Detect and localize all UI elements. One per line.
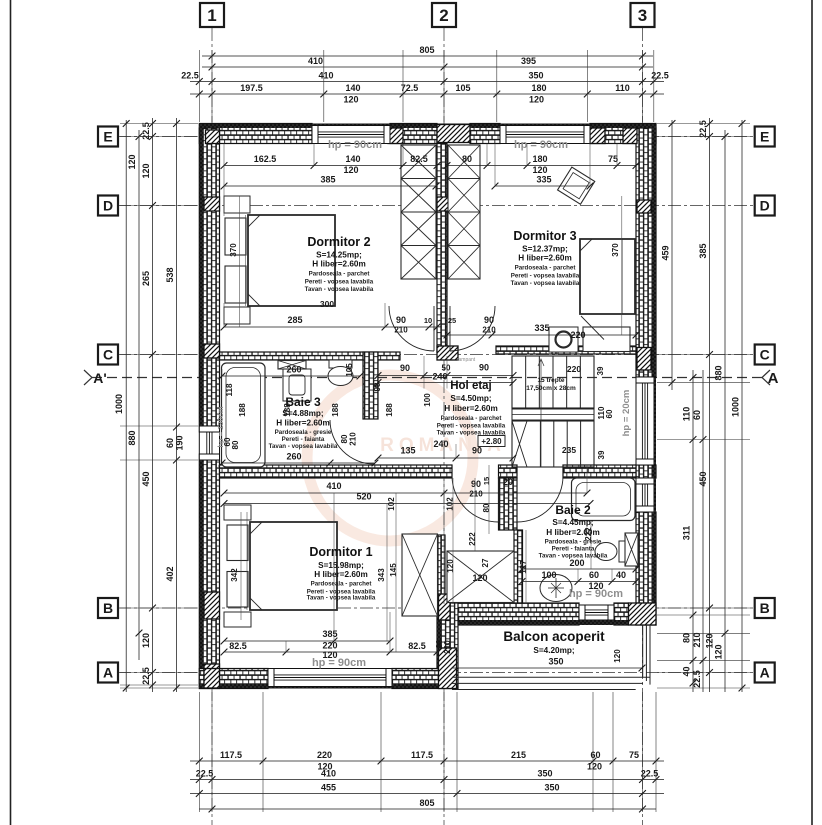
svg-text:410: 410 <box>318 71 333 81</box>
svg-text:Tavan - vopsea lavabila: Tavan - vopsea lavabila <box>511 280 580 287</box>
svg-text:402: 402 <box>165 566 175 581</box>
svg-text:2: 2 <box>439 6 448 25</box>
svg-text:80: 80 <box>231 440 240 449</box>
svg-text:Balcon acoperit: Balcon acoperit <box>503 629 605 644</box>
svg-text:120: 120 <box>446 559 455 573</box>
svg-text:135: 135 <box>400 446 415 456</box>
svg-text:hp = 90cm: hp = 90cm <box>514 139 568 151</box>
svg-text:Pereti - faianta: Pereti - faianta <box>282 436 325 443</box>
svg-text:210: 210 <box>443 640 452 654</box>
svg-text:1: 1 <box>207 6 216 25</box>
svg-text:210: 210 <box>469 490 483 499</box>
svg-text:22.5: 22.5 <box>698 120 708 138</box>
svg-text:120: 120 <box>472 573 487 583</box>
svg-text:120: 120 <box>532 165 547 175</box>
svg-text:311: 311 <box>682 526 692 541</box>
svg-text:117.5: 117.5 <box>411 750 433 760</box>
svg-text:880: 880 <box>714 365 724 380</box>
svg-text:60: 60 <box>692 410 702 420</box>
svg-text:105: 105 <box>455 83 470 93</box>
svg-text:220: 220 <box>567 364 581 374</box>
svg-text:82.5: 82.5 <box>408 641 426 651</box>
svg-text:260: 260 <box>286 365 301 375</box>
svg-text:335: 335 <box>534 323 549 333</box>
svg-text:22.5: 22.5 <box>141 122 151 140</box>
svg-text:3: 3 <box>638 6 647 25</box>
svg-text:Dormitor 3: Dormitor 3 <box>513 229 576 243</box>
svg-text:220: 220 <box>322 641 337 651</box>
svg-text:450: 450 <box>698 471 708 486</box>
svg-text:120: 120 <box>714 644 724 659</box>
svg-text:385: 385 <box>322 629 337 639</box>
svg-text:100: 100 <box>423 393 432 407</box>
svg-text:140: 140 <box>345 83 360 93</box>
svg-text:210: 210 <box>349 432 358 446</box>
svg-text:410: 410 <box>321 769 336 779</box>
svg-text:880: 880 <box>127 430 137 445</box>
svg-text:B: B <box>760 600 770 616</box>
svg-text:117.5: 117.5 <box>220 750 242 760</box>
svg-text:39: 39 <box>596 366 605 375</box>
svg-text:370: 370 <box>611 243 620 257</box>
svg-text:1000: 1000 <box>731 397 741 417</box>
svg-text:Dormitor 1: Dormitor 1 <box>309 545 372 559</box>
svg-text:22.5: 22.5 <box>641 769 659 779</box>
svg-text:39: 39 <box>597 450 606 459</box>
svg-text:rampant: rampant <box>457 357 476 363</box>
svg-text:265: 265 <box>141 271 151 286</box>
svg-text:+2.80: +2.80 <box>481 437 502 446</box>
svg-text:385: 385 <box>320 175 335 185</box>
svg-text:395: 395 <box>521 56 536 66</box>
svg-text:385: 385 <box>698 243 708 258</box>
svg-text:Pardoseala - parchet: Pardoseala - parchet <box>311 581 372 588</box>
svg-text:D: D <box>103 198 113 214</box>
svg-text:1000: 1000 <box>114 394 124 414</box>
svg-text:120: 120 <box>588 581 603 591</box>
svg-text:H liber=2.60m: H liber=2.60m <box>276 419 329 428</box>
svg-text:E: E <box>103 129 112 145</box>
svg-text:80: 80 <box>682 633 692 643</box>
svg-text:90: 90 <box>484 315 494 325</box>
svg-text:10: 10 <box>424 316 432 325</box>
svg-text:H liber=2.60m: H liber=2.60m <box>312 260 365 269</box>
svg-text:C: C <box>760 347 770 363</box>
svg-text:40: 40 <box>616 570 626 580</box>
svg-text:C: C <box>103 347 113 363</box>
svg-text:82.5: 82.5 <box>410 154 428 164</box>
svg-text:350: 350 <box>528 71 543 81</box>
svg-text:805: 805 <box>419 798 434 808</box>
svg-text:240: 240 <box>433 439 448 449</box>
svg-text:188: 188 <box>238 403 247 417</box>
svg-text:S=12.37mp;: S=12.37mp; <box>522 245 568 254</box>
svg-text:75: 75 <box>629 750 639 760</box>
svg-text:Pereti - vopsea lavabila: Pereti - vopsea lavabila <box>305 279 374 286</box>
svg-text:40: 40 <box>682 666 692 676</box>
svg-text:hp = 90cm: hp = 90cm <box>328 139 382 151</box>
svg-text:240: 240 <box>432 372 447 382</box>
svg-text:75: 75 <box>608 154 618 164</box>
svg-text:Tavan - vopsea lavabila: Tavan - vopsea lavabila <box>305 286 374 293</box>
svg-text:80: 80 <box>462 154 472 164</box>
svg-text:145: 145 <box>389 563 398 577</box>
svg-text:235: 235 <box>562 445 576 455</box>
svg-text:Pardoseala - gresie: Pardoseala - gresie <box>275 429 332 436</box>
svg-text:B: B <box>103 600 113 616</box>
svg-text:450: 450 <box>141 471 151 486</box>
svg-text:180: 180 <box>532 154 547 164</box>
svg-text:A: A <box>103 665 113 681</box>
svg-text:335: 335 <box>536 175 551 185</box>
svg-text:188: 188 <box>283 403 292 417</box>
svg-text:22.5: 22.5 <box>692 670 702 688</box>
svg-text:350: 350 <box>544 783 559 793</box>
svg-text:210: 210 <box>482 326 496 335</box>
svg-text:805: 805 <box>419 45 434 55</box>
svg-text:Baie 2: Baie 2 <box>555 503 591 517</box>
svg-text:90: 90 <box>472 446 482 456</box>
svg-text:hp = 20cm: hp = 20cm <box>621 390 632 437</box>
svg-text:Pereti - vopsea lavabila: Pereti - vopsea lavabila <box>511 273 580 280</box>
svg-text:118: 118 <box>225 383 234 396</box>
svg-text:15: 15 <box>482 477 491 485</box>
svg-text:110: 110 <box>682 407 692 422</box>
svg-text:90: 90 <box>400 363 410 373</box>
svg-text:S=4.50mp;: S=4.50mp; <box>450 394 491 403</box>
svg-text:110: 110 <box>615 83 630 93</box>
svg-text:190: 190 <box>175 435 185 450</box>
svg-text:120: 120 <box>322 650 337 660</box>
svg-text:210: 210 <box>394 326 408 335</box>
svg-text:82.5: 82.5 <box>229 641 247 651</box>
svg-text:60: 60 <box>589 570 599 580</box>
svg-text:Tavan - vopsea lavabila: Tavan - vopsea lavabila <box>307 595 376 602</box>
svg-text:222: 222 <box>584 527 593 541</box>
svg-text:162.5: 162.5 <box>254 154 277 164</box>
svg-text:220: 220 <box>570 330 585 340</box>
svg-text:80: 80 <box>482 503 491 512</box>
svg-text:520: 520 <box>356 492 371 502</box>
svg-text:60: 60 <box>590 750 600 760</box>
svg-text:Pardoseala - parchet: Pardoseala - parchet <box>441 415 502 422</box>
svg-text:459: 459 <box>661 245 671 260</box>
svg-text:120: 120 <box>343 165 358 175</box>
svg-text:H liber=2.60m: H liber=2.60m <box>518 254 571 263</box>
svg-text:Hol etaj: Hol etaj <box>450 380 492 392</box>
svg-text:120: 120 <box>529 95 544 105</box>
svg-text:197.5: 197.5 <box>240 83 263 93</box>
svg-text:98: 98 <box>373 382 382 391</box>
svg-text:22.5: 22.5 <box>196 769 214 779</box>
svg-text:S=15.98mp;: S=15.98mp; <box>318 561 364 570</box>
svg-text:120: 120 <box>613 649 622 663</box>
svg-text:A': A' <box>93 370 106 386</box>
svg-text:60: 60 <box>165 438 175 448</box>
svg-text:15 trepte: 15 trepte <box>537 377 564 384</box>
svg-text:140: 140 <box>345 154 360 164</box>
svg-text:A: A <box>760 665 770 681</box>
svg-text:17,50cm x 28cm: 17,50cm x 28cm <box>526 385 576 392</box>
svg-text:90: 90 <box>479 363 489 373</box>
svg-text:215: 215 <box>511 750 526 760</box>
svg-text:120: 120 <box>127 154 137 169</box>
svg-text:25: 25 <box>448 316 456 325</box>
svg-text:S=4.20mp;: S=4.20mp; <box>533 646 574 655</box>
svg-text:Pardoseala - parchet: Pardoseala - parchet <box>309 271 370 278</box>
svg-text:27: 27 <box>481 558 490 567</box>
svg-text:410: 410 <box>326 481 341 491</box>
svg-text:120: 120 <box>343 95 358 105</box>
svg-text:180: 180 <box>531 83 546 93</box>
svg-text:H liber=2.60m: H liber=2.60m <box>314 570 367 579</box>
svg-text:Tavan - vopsea lavabila: Tavan - vopsea lavabila <box>269 443 338 450</box>
svg-text:90: 90 <box>471 479 481 489</box>
svg-text:210: 210 <box>692 632 702 647</box>
svg-text:188: 188 <box>331 403 340 417</box>
svg-text:100: 100 <box>541 570 556 580</box>
svg-text:S=14.25mp;: S=14.25mp; <box>316 251 362 260</box>
svg-text:120: 120 <box>587 762 602 772</box>
svg-text:120: 120 <box>141 633 151 648</box>
svg-text:90: 90 <box>396 315 406 325</box>
svg-text:222: 222 <box>468 532 477 546</box>
svg-text:350: 350 <box>537 769 552 779</box>
svg-text:102: 102 <box>387 497 396 511</box>
svg-text:350: 350 <box>548 657 563 667</box>
svg-text:200: 200 <box>569 558 584 568</box>
svg-text:342: 342 <box>230 568 239 582</box>
svg-text:72.5: 72.5 <box>401 83 419 93</box>
svg-text:260: 260 <box>286 452 301 462</box>
svg-text:220: 220 <box>317 750 332 760</box>
svg-text:538: 538 <box>165 267 175 282</box>
svg-text:20: 20 <box>503 477 513 487</box>
svg-text:455: 455 <box>321 783 336 793</box>
svg-text:22.5: 22.5 <box>181 71 199 81</box>
svg-text:S=4.45mp;: S=4.45mp; <box>552 518 593 527</box>
svg-text:Dormitor 2: Dormitor 2 <box>307 235 370 249</box>
svg-text:Pereti - faianta: Pereti - faianta <box>552 546 595 553</box>
svg-text:60: 60 <box>605 409 614 418</box>
svg-text:300: 300 <box>320 299 334 309</box>
svg-text:105: 105 <box>345 363 354 377</box>
svg-text:E: E <box>760 129 769 145</box>
svg-text:hp = 90cm: hp = 90cm <box>312 657 366 669</box>
svg-text:Pardoseala - parchet: Pardoseala - parchet <box>515 265 576 272</box>
svg-text:188: 188 <box>385 403 394 417</box>
svg-text:285: 285 <box>287 315 302 325</box>
svg-text:343: 343 <box>377 568 386 582</box>
svg-text:410: 410 <box>308 56 323 66</box>
svg-text:H liber=2.60m: H liber=2.60m <box>444 404 497 413</box>
svg-text:22.5: 22.5 <box>141 667 151 685</box>
svg-text:D: D <box>760 198 770 214</box>
svg-text:370: 370 <box>229 243 238 257</box>
svg-text:Pardoseala - gresie: Pardoseala - gresie <box>545 539 602 546</box>
svg-text:120: 120 <box>141 163 151 178</box>
svg-text:Pereti - vopsea lavabila: Pereti - vopsea lavabila <box>437 423 506 430</box>
